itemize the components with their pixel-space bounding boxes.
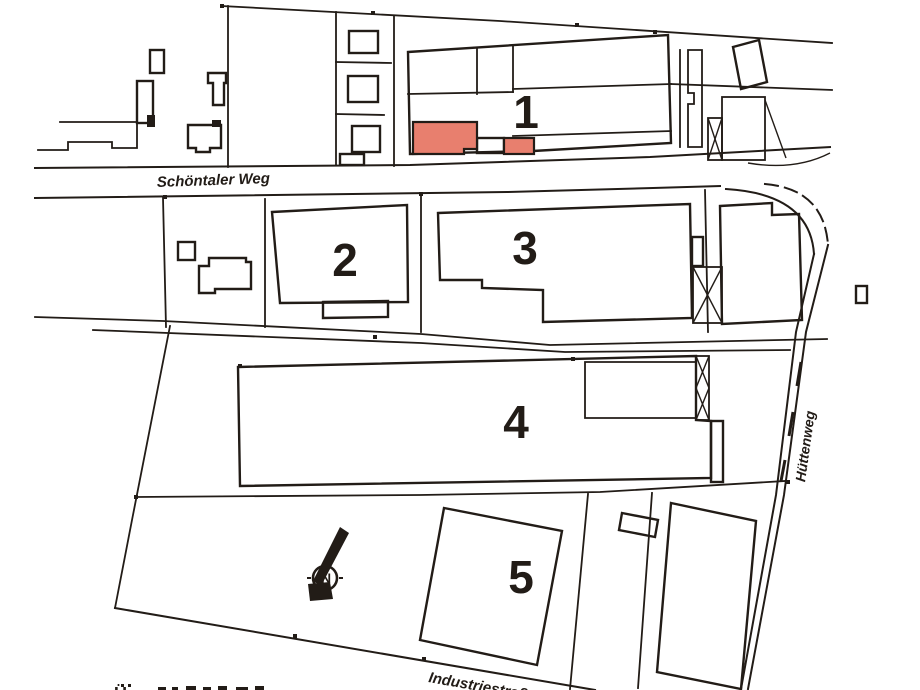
building-1-label: 1 [513,86,539,138]
site-plan-map: 1 2 3 4 5 Schöntaler Weg Hüttenweg Indus… [0,0,920,690]
building-annex-mark [147,115,155,127]
scanned-site-plan-page: 1 2 3 4 5 Schöntaler Weg Hüttenweg Indus… [0,0,920,690]
building-annex-mark [212,120,221,127]
building-3-label: 3 [512,222,538,274]
highlighted-building-main [413,122,477,154]
building-2-label: 2 [332,234,358,286]
building-4-label: 4 [503,396,529,448]
cut-off-caption-fragment: Ü [114,684,127,690]
building-5-label: 5 [508,551,534,603]
compass-north-label: N [321,570,331,586]
highlighted-building-annex [504,138,534,154]
